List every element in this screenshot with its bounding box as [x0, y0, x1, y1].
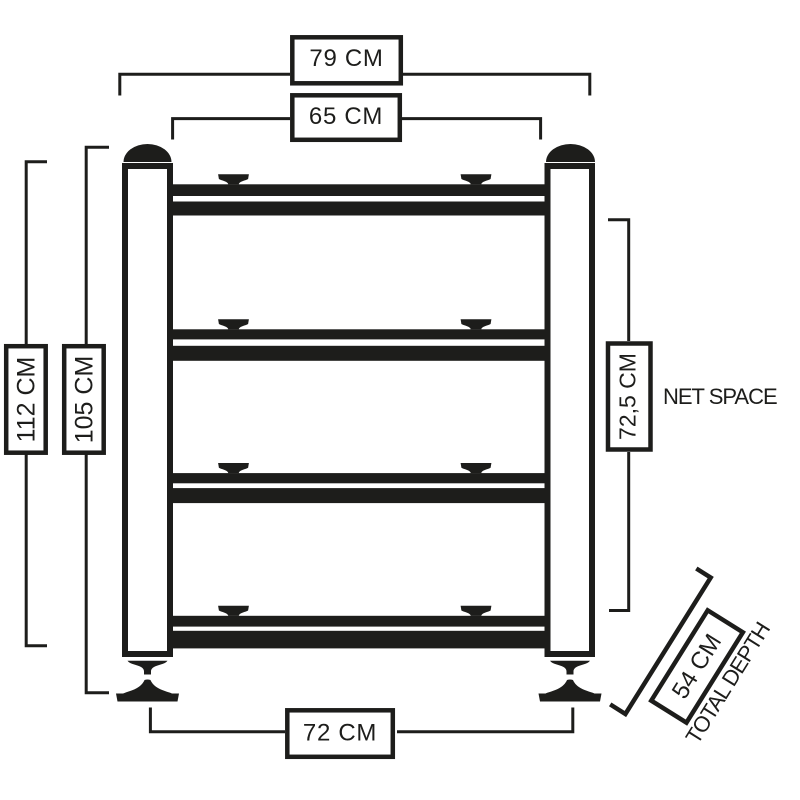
svg-text:105 CM: 105 CM: [71, 356, 99, 444]
svg-text:72 CM: 72 CM: [303, 720, 377, 747]
svg-text:NET SPACE: NET SPACE: [663, 384, 777, 409]
svg-text:79 CM: 79 CM: [309, 45, 383, 72]
svg-text:72,5 CM: 72,5 CM: [615, 353, 641, 440]
svg-text:112 CM: 112 CM: [13, 357, 41, 443]
svg-text:65 CM: 65 CM: [309, 103, 383, 130]
